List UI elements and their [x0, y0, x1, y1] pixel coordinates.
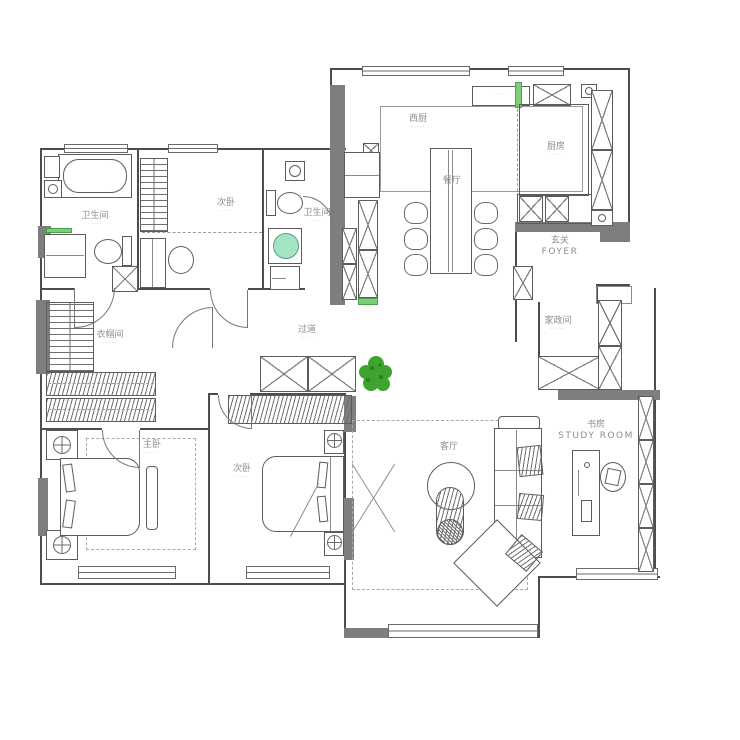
pouf-small	[437, 519, 463, 545]
door-arc	[172, 307, 213, 348]
nightstand-lamp	[53, 436, 71, 454]
room-label-text: 衣帽间	[96, 330, 123, 340]
plant	[356, 350, 396, 398]
wall-poche	[600, 232, 630, 242]
room-label-master: 主卧 ·····	[143, 440, 161, 457]
desk-item	[578, 470, 579, 496]
door-leaf	[247, 290, 248, 328]
washing-machine-drum	[273, 233, 299, 259]
bookshelf-cell	[638, 440, 654, 484]
wall-segment	[208, 393, 210, 585]
toilet-bowl	[277, 192, 303, 214]
sliding-door-dashed	[517, 104, 518, 196]
room-area-text: ·····	[81, 222, 108, 228]
wall-poche	[344, 628, 390, 638]
dining-chair	[474, 202, 498, 224]
closet-hanging-row	[46, 372, 156, 396]
desk-chair	[168, 246, 194, 274]
bookshelf-cell	[638, 528, 654, 572]
cooktop	[533, 84, 571, 106]
door-arc	[75, 288, 115, 328]
door-leaf	[139, 430, 140, 468]
room-label-text: 书房	[587, 420, 605, 430]
duct-shaft	[112, 266, 138, 292]
room-label-bed2: 次卧 ·····	[217, 198, 235, 215]
room-area-text: ·····	[303, 219, 330, 225]
faucet	[272, 278, 286, 279]
wall-segment	[538, 302, 540, 358]
tall-cabinet	[358, 250, 378, 298]
tall-cabinet	[342, 264, 357, 300]
cabinet	[44, 156, 60, 178]
dining-chair	[474, 228, 498, 250]
hall-cabinet	[308, 356, 356, 392]
utility-cabinet	[598, 346, 622, 390]
room-label-kitchen: 厨房 ·····	[547, 142, 565, 159]
room-area-text: ·····	[544, 327, 571, 333]
desk	[140, 238, 166, 288]
room-label-foyer: 玄关 FOYER	[542, 236, 579, 258]
room-label-cloakroom: 衣帽间 ·····	[96, 330, 123, 347]
door-leaf	[251, 395, 252, 429]
wall-poche	[38, 478, 48, 536]
window	[64, 144, 128, 153]
bed-bench	[146, 466, 158, 530]
wall-segment	[248, 288, 264, 290]
bed-secondary	[262, 456, 344, 532]
dining-chair	[404, 228, 428, 250]
window	[362, 66, 470, 76]
room-label-text: 过道	[298, 325, 316, 335]
room-area-text: ·····	[443, 187, 461, 193]
window	[246, 566, 330, 579]
wall-segment	[139, 288, 210, 290]
dining-table	[430, 148, 472, 274]
room-area-text: ·····	[440, 453, 458, 459]
room-area-text: ·····	[233, 475, 251, 481]
sink-basin	[48, 184, 58, 194]
room-label-bath2: 卫生间 ·····	[303, 208, 330, 225]
room-label-text: 厨房	[547, 142, 565, 152]
window	[388, 624, 538, 638]
kitchen-sink-unit	[519, 196, 543, 222]
room-label-text: 次卧	[233, 464, 251, 474]
green-strip	[46, 228, 72, 233]
dashed-line	[142, 232, 262, 233]
room-label-en: FOYER	[542, 247, 579, 258]
door-leaf	[74, 288, 75, 328]
desk-line	[152, 239, 153, 287]
utility-cabinet	[538, 356, 600, 390]
desk-monitor	[581, 500, 592, 522]
room-area-text: ·····	[547, 153, 565, 159]
dining-chair	[404, 202, 428, 224]
room-label-text: 客厅	[440, 442, 458, 452]
tall-cabinet	[591, 90, 613, 150]
dining-chair	[404, 254, 428, 276]
room-label-text: 主卧	[143, 440, 161, 450]
room-label-bath1: 卫生间 ·····	[81, 211, 108, 228]
nightstand-lamp	[327, 535, 342, 550]
toilet-tank	[266, 190, 276, 216]
room-area-text: ·····	[298, 336, 316, 342]
floor-plan: 卫生间 ····· 次卧 ····· 卫生间 ····· 西厨 ····· 餐厅…	[0, 0, 740, 740]
fridge-line	[345, 175, 379, 176]
room-label-living: 客厅 ·····	[440, 442, 458, 459]
room-area-text: ·····	[217, 209, 235, 215]
room-area-text: ·····	[143, 451, 161, 457]
toilet-bowl	[94, 239, 122, 264]
counter-note: ·····	[493, 92, 508, 98]
closet-rod	[48, 383, 154, 384]
sofa-pillow	[517, 493, 544, 521]
room-label-text: 次卧	[217, 198, 235, 208]
wall-segment	[538, 578, 540, 638]
door-arc	[218, 395, 252, 429]
tall-cabinet	[342, 228, 357, 264]
wall-segment	[262, 148, 264, 290]
room-label-dining: 餐厅 ·····	[443, 176, 461, 193]
room-label-bed3: 次卧 ·····	[233, 464, 251, 481]
wardrobe	[140, 158, 168, 232]
dining-chair	[474, 254, 498, 276]
tall-cabinet	[358, 200, 378, 250]
wall-segment	[40, 583, 346, 585]
wall-segment	[628, 68, 630, 224]
nightstand-lamp	[327, 433, 342, 448]
closet-rod	[48, 409, 154, 410]
window	[508, 66, 564, 76]
door-leaf	[212, 307, 213, 348]
closet-hanging-row	[46, 398, 156, 422]
room-label-hallway: 过道 ·····	[298, 325, 316, 342]
green-strip	[358, 298, 378, 305]
table-line	[452, 150, 453, 272]
utility-cabinet	[598, 300, 622, 346]
bookshelf-cell	[638, 484, 654, 528]
vanity-cabinet	[44, 234, 86, 278]
room-label-utility: 家政间 ·····	[544, 316, 571, 333]
door-arc	[210, 290, 248, 328]
room-label-text: 卫生间	[303, 208, 330, 218]
wall-segment	[140, 428, 210, 430]
wall-segment	[208, 393, 218, 395]
room-area-text: ·····	[409, 125, 427, 131]
nightstand-lamp	[53, 536, 71, 554]
table-line	[448, 150, 449, 272]
kitchen-appliance-unit	[545, 196, 569, 222]
room-label-text: 西厨	[409, 114, 427, 124]
window	[168, 144, 218, 153]
room-label-text: 卫生间	[81, 211, 108, 221]
room-label-en: STUDY ROOM	[558, 431, 634, 442]
sofa-pillow	[516, 445, 543, 477]
bookshelf-cell	[638, 396, 654, 440]
room-label-text: 餐厅	[443, 176, 461, 186]
room-label-text: 玄关	[551, 236, 569, 246]
room-label-west-kitchen: 西厨 ·····	[409, 114, 427, 131]
tall-cabinet	[591, 150, 613, 210]
cabinet-knob	[598, 214, 606, 222]
window	[78, 566, 176, 579]
cabinet-line	[46, 255, 84, 256]
desk-dot	[584, 462, 590, 468]
room-area-text: ·····	[96, 341, 123, 347]
room-label-text: 家政间	[544, 316, 571, 326]
bathtub-inner	[63, 159, 127, 193]
wall-segment	[654, 288, 656, 578]
hall-cabinet	[260, 356, 308, 392]
foyer-cabinet	[513, 266, 533, 300]
headboard-line	[330, 457, 331, 531]
toilet-tank	[122, 236, 132, 266]
counter-note-text: ·····	[493, 92, 508, 98]
sink-basin	[289, 165, 301, 177]
wall-segment	[40, 288, 75, 290]
room-label-study: 书房 STUDY ROOM	[558, 420, 634, 442]
